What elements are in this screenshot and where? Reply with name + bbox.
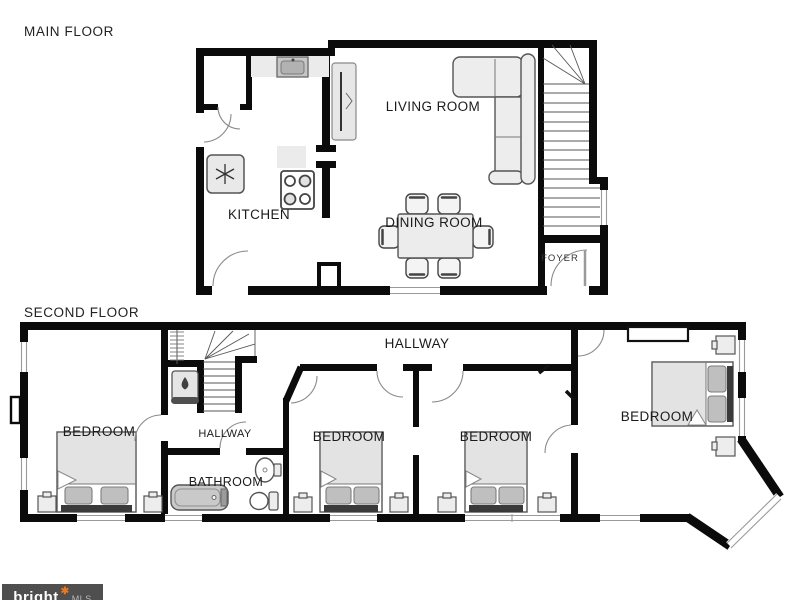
watermark-star-icon: ✱ (61, 586, 70, 597)
water-heater (171, 371, 199, 404)
room-label-bedroom-right: BEDROOM (621, 409, 694, 424)
stove (281, 171, 314, 209)
bed-right (652, 336, 735, 456)
dining-chair (438, 258, 460, 278)
dining-chair (438, 194, 460, 214)
second-floor-title: SECOND FLOOR (24, 305, 139, 320)
main-floor-plan: MAIN FLOOR (24, 24, 608, 295)
window (20, 342, 28, 372)
nightstand (712, 437, 735, 456)
hallway-door-arc (432, 371, 463, 402)
room-label-bedroom-mid-left: BEDROOM (313, 429, 386, 444)
window (738, 340, 746, 372)
window (165, 514, 202, 522)
bed-left (38, 432, 162, 512)
side-door-arc (204, 114, 231, 142)
window (77, 514, 125, 522)
room-label-foyer: FOYER (541, 253, 579, 264)
room-label-dining-room: DINING ROOM (385, 215, 482, 230)
window (330, 514, 377, 522)
room-label-hallway: HALLWAY (385, 336, 450, 351)
nightstand (144, 492, 162, 512)
bedroom-right-door-arc (578, 330, 604, 356)
closet-right-bedroom (628, 327, 688, 341)
dining-set (379, 194, 493, 278)
window (738, 398, 746, 436)
watermark-brand: bright (13, 589, 59, 600)
window (465, 514, 560, 522)
living-room-furniture (332, 54, 535, 184)
room-label-living-room: LIVING ROOM (386, 99, 480, 114)
radiator (170, 330, 184, 364)
window-stair-landing (600, 190, 608, 225)
closet-door-arc (218, 107, 240, 129)
window-dining (390, 286, 440, 295)
hallway-door-arc (377, 371, 403, 397)
bed-middle-right (438, 432, 556, 512)
brightmls-watermark: bright✱MLS (2, 584, 103, 600)
nightstand (38, 492, 56, 512)
nightstand (390, 493, 408, 512)
window (20, 458, 28, 490)
chimney-bump (11, 397, 20, 423)
room-label-bathroom: BATHROOM (189, 475, 264, 489)
nightstand (438, 493, 456, 512)
nightstand (294, 493, 312, 512)
kitchen-counter-2 (277, 146, 306, 168)
nightstand (538, 493, 556, 512)
rear-door-arc (213, 251, 248, 286)
nightstand (712, 336, 735, 354)
main-floor-title: MAIN FLOOR (24, 24, 114, 39)
room-label-bedroom-left: BEDROOM (63, 424, 136, 439)
bed-middle-left (294, 432, 408, 512)
dining-chair (406, 258, 428, 278)
dining-chair (406, 194, 428, 214)
floor-plan-page: MAIN FLOOR (0, 0, 800, 600)
room-label-bedroom-mid-right: BEDROOM (460, 429, 533, 444)
room-label-kitchen: KITCHEN (228, 207, 290, 222)
bay-window (727, 494, 781, 548)
bedroom-mid-right-door-arc (545, 425, 571, 453)
sectional-sofa (453, 54, 535, 184)
main-floor-windows (196, 113, 608, 295)
side-door-opening (196, 113, 204, 147)
refrigerator (207, 155, 244, 193)
bedroom-left-door-arc (135, 415, 161, 441)
tv-unit (332, 63, 356, 140)
room-label-hallway-small: HALLWAY (198, 428, 252, 440)
kitchen-fixtures (207, 56, 329, 209)
toilet (250, 492, 278, 510)
watermark-suffix: MLS (72, 594, 92, 600)
window (600, 514, 640, 522)
second-floor-plan: SECOND FLOOR (11, 305, 781, 548)
floor-plan-canvas: MAIN FLOOR (0, 0, 800, 600)
kitchen-sink (277, 57, 308, 77)
second-stairs (203, 330, 255, 411)
